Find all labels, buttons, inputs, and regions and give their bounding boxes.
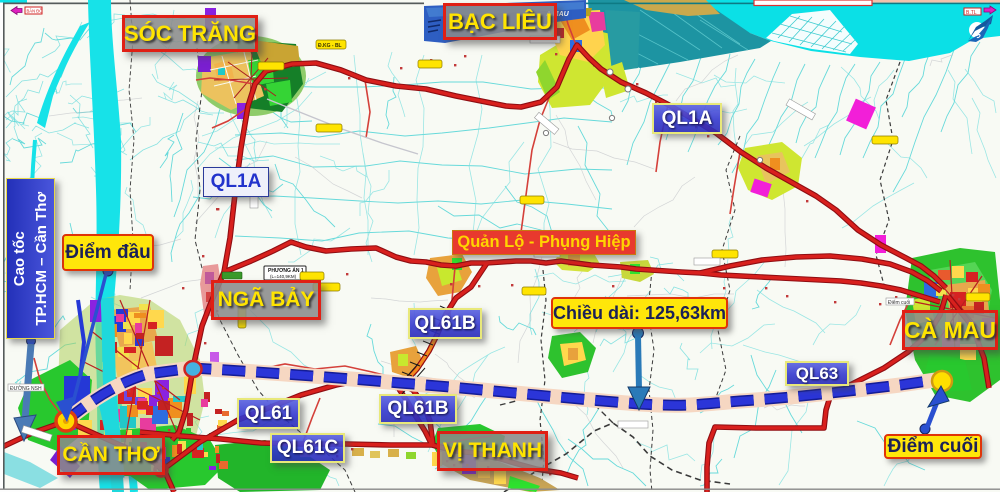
svg-text:(L=140,9KM): (L=140,9KM): [270, 274, 297, 279]
svg-text:PHƯƠNG ÁN 1: PHƯƠNG ÁN 1: [268, 267, 304, 274]
svg-text:B.TL: B.TL: [966, 10, 977, 16]
svg-text:Điểm cuối: Điểm cuối: [888, 299, 910, 306]
svg-text:BẢN ĐỒ: BẢN ĐỒ: [27, 9, 44, 14]
svg-text:Đ.KG - BL: Đ.KG - BL: [318, 43, 342, 49]
svg-text:ĐƯỜNG NSH: ĐƯỜNG NSH: [10, 385, 42, 392]
